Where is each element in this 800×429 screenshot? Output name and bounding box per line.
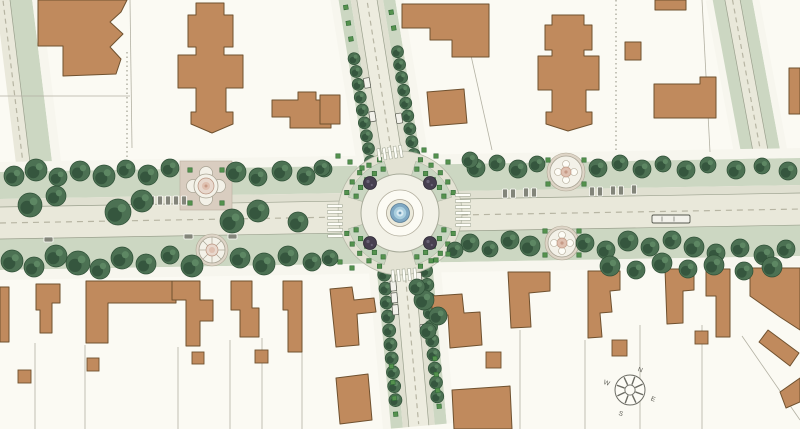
plaza-planter bbox=[563, 177, 570, 184]
tree-highlight bbox=[34, 261, 40, 267]
crosswalk-bar bbox=[328, 234, 343, 237]
building-footprint bbox=[538, 15, 599, 131]
shrub bbox=[433, 356, 438, 361]
tree-highlight bbox=[650, 241, 656, 247]
shrub bbox=[346, 21, 351, 26]
street-tree bbox=[181, 255, 203, 277]
tree-highlight bbox=[258, 171, 264, 177]
shrub bbox=[367, 163, 371, 167]
specimen-tree-canopy bbox=[364, 177, 377, 190]
shrub bbox=[220, 168, 224, 172]
tree-highlight bbox=[606, 244, 612, 250]
shrub bbox=[357, 170, 361, 174]
plaza-basin-core bbox=[209, 247, 215, 253]
shrub bbox=[446, 160, 450, 164]
building-footprint bbox=[0, 287, 9, 342]
street-tree bbox=[612, 155, 628, 171]
tree-highlight bbox=[497, 158, 502, 163]
shrub bbox=[391, 26, 396, 31]
shrub bbox=[415, 167, 419, 171]
tree-highlight bbox=[772, 261, 778, 267]
street-tree bbox=[633, 160, 651, 178]
street-tree bbox=[618, 231, 638, 251]
bus-body bbox=[652, 215, 690, 223]
street-tree bbox=[253, 253, 275, 275]
tree-highlight bbox=[764, 249, 770, 255]
specimen-tree-canopy bbox=[424, 177, 437, 190]
tree-highlight bbox=[142, 194, 149, 201]
tree-highlight bbox=[716, 247, 722, 253]
shrub bbox=[543, 229, 547, 233]
street-tree bbox=[641, 238, 659, 256]
tree-highlight bbox=[80, 165, 86, 171]
compass-rose-graphic bbox=[615, 375, 645, 405]
tree-highlight bbox=[122, 251, 129, 258]
shrub bbox=[438, 170, 442, 174]
shrub bbox=[350, 266, 354, 270]
plaza-jet bbox=[560, 241, 563, 244]
tree-highlight bbox=[518, 163, 524, 169]
shrub bbox=[418, 264, 422, 268]
outbuilding-footprint bbox=[255, 350, 268, 363]
tree-highlight bbox=[786, 243, 792, 249]
tree-highlight bbox=[240, 252, 246, 258]
shrub bbox=[442, 194, 446, 198]
parked-car bbox=[632, 185, 637, 194]
street-tree bbox=[655, 156, 671, 172]
tree-highlight bbox=[258, 204, 265, 211]
shrub bbox=[437, 236, 441, 240]
street-tree bbox=[589, 159, 607, 177]
street-tree bbox=[529, 156, 545, 172]
street-tree bbox=[161, 246, 179, 264]
parked-car bbox=[590, 187, 595, 196]
specimen-tree-highlight bbox=[366, 240, 369, 243]
tree-highlight bbox=[662, 257, 668, 263]
street-tree bbox=[138, 165, 158, 185]
street-tree bbox=[754, 158, 770, 174]
crosswalk-bar bbox=[456, 211, 471, 214]
parked-car bbox=[611, 186, 616, 195]
street-tree bbox=[105, 199, 131, 225]
shrub bbox=[546, 158, 550, 162]
bus bbox=[652, 215, 690, 223]
tree-highlight bbox=[530, 240, 536, 246]
street-tree bbox=[704, 255, 724, 275]
plaza-planter bbox=[567, 240, 574, 247]
shrub bbox=[390, 380, 395, 385]
shrub bbox=[348, 160, 352, 164]
tree-highlight bbox=[330, 253, 335, 258]
crosswalk-bar bbox=[456, 217, 471, 220]
crosswalk-bar bbox=[327, 210, 342, 213]
parked-car bbox=[532, 188, 537, 197]
shrub bbox=[354, 228, 358, 232]
tree-highlight bbox=[58, 171, 64, 177]
tree-highlight bbox=[510, 234, 516, 240]
street-tree bbox=[314, 160, 330, 176]
shrub bbox=[438, 251, 442, 255]
parked-car bbox=[392, 305, 399, 315]
building-footprint bbox=[320, 95, 340, 124]
parked-car bbox=[369, 111, 377, 122]
parked-car bbox=[619, 186, 624, 195]
specimen-tree bbox=[424, 177, 437, 190]
street-tree bbox=[220, 209, 244, 233]
outbuilding-footprint bbox=[695, 331, 708, 344]
tree-highlight bbox=[694, 241, 700, 247]
shrub bbox=[393, 412, 398, 417]
tree-highlight bbox=[470, 155, 475, 160]
street-tree bbox=[735, 262, 753, 280]
shrub bbox=[437, 185, 441, 189]
tree-highlight bbox=[312, 256, 318, 262]
street-tree bbox=[731, 239, 749, 257]
tree-highlight bbox=[688, 263, 694, 269]
crosswalk-bar bbox=[455, 193, 470, 196]
plaza-planter bbox=[555, 169, 562, 176]
shrub bbox=[451, 231, 455, 235]
shrub bbox=[377, 264, 381, 268]
street-tree bbox=[520, 236, 540, 256]
tree-highlight bbox=[78, 256, 86, 264]
shrub bbox=[389, 10, 394, 15]
street-tree bbox=[576, 234, 594, 252]
tree-highlight bbox=[672, 234, 678, 240]
outbuilding-footprint bbox=[486, 352, 501, 368]
specimen-tree-highlight bbox=[426, 180, 429, 183]
street-tree bbox=[663, 231, 681, 249]
outbuilding-footprint bbox=[87, 358, 99, 371]
shrub bbox=[434, 258, 438, 262]
street-tree bbox=[501, 231, 519, 249]
roundabout bbox=[338, 151, 462, 275]
street-tree bbox=[111, 247, 133, 269]
shrub bbox=[345, 231, 349, 235]
street-tree bbox=[226, 162, 246, 182]
shrub bbox=[338, 260, 342, 264]
shrub bbox=[360, 166, 364, 170]
shrub bbox=[188, 201, 192, 205]
compass-hub bbox=[625, 385, 635, 395]
street-tree bbox=[249, 168, 267, 186]
shrub bbox=[434, 154, 438, 158]
street-tree bbox=[4, 166, 24, 186]
plaza-planter bbox=[571, 169, 578, 176]
shrub bbox=[423, 171, 427, 175]
shrub bbox=[220, 201, 224, 205]
tree-highlight bbox=[170, 249, 176, 255]
shrub bbox=[345, 190, 349, 194]
plaza-planter bbox=[559, 248, 566, 255]
tree-highlight bbox=[170, 162, 176, 168]
tree-highlight bbox=[620, 158, 625, 163]
tree-highlight bbox=[14, 170, 20, 176]
street-tree bbox=[679, 260, 697, 278]
tree-highlight bbox=[455, 245, 460, 250]
tree-highlight bbox=[714, 259, 720, 265]
crosswalk-bar bbox=[327, 216, 342, 219]
specimen-tree-canopy bbox=[424, 237, 437, 250]
street-tree bbox=[700, 157, 716, 173]
site-plan-page: N E S W bbox=[0, 0, 800, 429]
street-tree bbox=[230, 248, 250, 268]
street-tree bbox=[278, 246, 298, 266]
street-tree bbox=[45, 245, 67, 267]
specimen-tree-highlight bbox=[371, 244, 373, 246]
street-tree bbox=[303, 253, 321, 271]
shrub bbox=[422, 148, 426, 152]
parked-car bbox=[44, 237, 53, 242]
street-tree bbox=[46, 186, 66, 206]
specimen-tree bbox=[364, 237, 377, 250]
tree-highlight bbox=[192, 259, 199, 266]
shrub bbox=[546, 182, 550, 186]
street-tree bbox=[462, 152, 478, 168]
parked-car bbox=[174, 196, 179, 205]
crosswalk-bar bbox=[455, 199, 470, 202]
tree-highlight bbox=[30, 198, 38, 206]
building-footprint bbox=[336, 374, 372, 424]
shrub bbox=[582, 182, 586, 186]
street-tree bbox=[420, 323, 436, 339]
street-tree bbox=[762, 257, 782, 277]
street-tree bbox=[66, 251, 90, 275]
tree-highlight bbox=[236, 166, 242, 172]
shrub bbox=[582, 158, 586, 162]
shrub bbox=[389, 364, 394, 369]
shrub bbox=[367, 259, 371, 263]
crosswalk-bar bbox=[456, 223, 471, 226]
tree-highlight bbox=[288, 250, 294, 256]
street-tree bbox=[136, 254, 156, 274]
tree-highlight bbox=[585, 237, 591, 243]
tree-highlight bbox=[628, 235, 634, 241]
shrub bbox=[188, 168, 192, 172]
street-tree bbox=[161, 159, 179, 177]
tree-highlight bbox=[12, 254, 19, 261]
specimen-tree-canopy bbox=[364, 237, 377, 250]
plaza-planter bbox=[551, 240, 558, 247]
parked-car bbox=[228, 234, 237, 239]
outbuilding-footprint bbox=[18, 370, 31, 383]
plaza-jet bbox=[564, 170, 567, 173]
parked-car bbox=[182, 196, 187, 205]
street-tree bbox=[779, 162, 797, 180]
outbuilding-footprint bbox=[612, 340, 627, 356]
street-tree bbox=[677, 161, 695, 179]
tree-highlight bbox=[740, 242, 746, 248]
specimen-tree-highlight bbox=[431, 244, 433, 246]
street-tree bbox=[461, 234, 479, 252]
shrub bbox=[451, 190, 455, 194]
shrub bbox=[577, 253, 581, 257]
street-tree bbox=[429, 307, 447, 325]
street-tree bbox=[272, 161, 292, 181]
shrub bbox=[429, 163, 433, 167]
parked-car bbox=[166, 196, 171, 205]
tree-highlight bbox=[56, 190, 62, 196]
street-tree bbox=[777, 240, 795, 258]
shrub bbox=[343, 5, 348, 10]
tree-highlight bbox=[322, 163, 327, 168]
shrub bbox=[357, 251, 361, 255]
tree-highlight bbox=[417, 282, 422, 287]
shrub bbox=[418, 158, 422, 162]
specimen-tree-highlight bbox=[426, 240, 429, 243]
specimen-tree-highlight bbox=[366, 180, 369, 183]
shrub bbox=[350, 180, 354, 184]
shrub bbox=[577, 229, 581, 233]
tree-highlight bbox=[264, 257, 271, 264]
shrub bbox=[392, 396, 397, 401]
parked-car bbox=[395, 113, 403, 124]
parked-car bbox=[184, 234, 193, 239]
street-tree bbox=[322, 250, 338, 266]
street-tree bbox=[600, 256, 620, 276]
tree-highlight bbox=[736, 164, 742, 170]
shrub bbox=[350, 242, 354, 246]
specimen-tree-highlight bbox=[371, 184, 373, 186]
parked-car bbox=[503, 189, 508, 198]
tree-highlight bbox=[610, 260, 616, 266]
tree-highlight bbox=[788, 165, 794, 171]
shrub bbox=[446, 180, 450, 184]
plaza-jet bbox=[205, 185, 208, 188]
shrub bbox=[543, 253, 547, 257]
tree-highlight bbox=[708, 160, 713, 165]
tree-highlight bbox=[232, 214, 240, 222]
tree-highlight bbox=[146, 258, 152, 264]
crosswalk-bar bbox=[327, 204, 342, 207]
tree-highlight bbox=[104, 169, 111, 176]
street-tree bbox=[24, 257, 44, 277]
street-tree bbox=[93, 165, 115, 187]
building-footprint bbox=[452, 386, 512, 429]
shrub bbox=[434, 372, 439, 377]
shrub bbox=[354, 194, 358, 198]
tree-highlight bbox=[56, 249, 63, 256]
tree-highlight bbox=[126, 163, 132, 169]
street-tree bbox=[49, 168, 67, 186]
shrub bbox=[336, 154, 340, 158]
street-tree bbox=[727, 161, 745, 179]
parked-car bbox=[391, 293, 398, 303]
street-tree bbox=[509, 160, 527, 178]
shrub bbox=[437, 404, 442, 409]
crosswalk-bar bbox=[328, 228, 343, 231]
street-tree bbox=[131, 190, 153, 212]
building-footprint bbox=[789, 68, 800, 114]
tree-highlight bbox=[306, 170, 312, 176]
tree-highlight bbox=[282, 165, 288, 171]
street-tree bbox=[18, 193, 42, 217]
tree-highlight bbox=[744, 265, 750, 271]
specimen-tree-highlight bbox=[431, 184, 433, 186]
plaza-planter bbox=[559, 232, 566, 239]
street-tree bbox=[489, 155, 505, 171]
plaza-planter bbox=[563, 161, 570, 168]
shrub bbox=[446, 252, 450, 256]
parked-car bbox=[511, 189, 516, 198]
tree-highlight bbox=[100, 263, 106, 269]
tree-highlight bbox=[642, 163, 648, 169]
crosswalk-bar bbox=[455, 205, 470, 208]
street-tree bbox=[247, 200, 269, 222]
parked-car bbox=[598, 187, 603, 196]
tree-highlight bbox=[298, 216, 304, 222]
street-tree bbox=[652, 253, 672, 273]
street-tree bbox=[25, 159, 47, 181]
street-tree bbox=[684, 237, 704, 257]
shrub bbox=[372, 171, 376, 175]
parked-car bbox=[363, 78, 371, 89]
shrub bbox=[372, 250, 376, 254]
street-tree bbox=[90, 259, 110, 279]
street-tree bbox=[288, 212, 308, 232]
shrub bbox=[429, 259, 433, 263]
street-tree bbox=[70, 161, 90, 181]
outbuilding-footprint bbox=[192, 352, 204, 364]
fountain-jet bbox=[399, 212, 402, 215]
site-plan-canvas: N E S W bbox=[0, 0, 800, 429]
specimen-tree bbox=[424, 237, 437, 250]
tree-highlight bbox=[598, 162, 604, 168]
tree-highlight bbox=[537, 159, 542, 164]
shrub bbox=[442, 228, 446, 232]
tree-highlight bbox=[490, 244, 495, 249]
shrub bbox=[435, 388, 440, 393]
tree-highlight bbox=[36, 163, 43, 170]
tree-highlight bbox=[470, 237, 476, 243]
building-footprint bbox=[427, 89, 467, 126]
tree-highlight bbox=[428, 326, 433, 331]
shrub bbox=[381, 167, 385, 171]
building-footprint bbox=[625, 42, 641, 60]
tree-highlight bbox=[636, 264, 642, 270]
street-tree bbox=[482, 241, 498, 257]
parked-car bbox=[158, 196, 163, 205]
tree-highlight bbox=[686, 164, 692, 170]
tree-highlight bbox=[424, 294, 430, 300]
shrub bbox=[381, 255, 385, 259]
shrub bbox=[358, 185, 362, 189]
tree-highlight bbox=[663, 159, 668, 164]
crosswalk-bar bbox=[328, 222, 343, 225]
tree-highlight bbox=[438, 310, 444, 316]
shrub bbox=[423, 250, 427, 254]
building-footprint bbox=[655, 0, 686, 10]
street-tree bbox=[627, 261, 645, 279]
shrub bbox=[348, 36, 353, 41]
tree-highlight bbox=[148, 169, 154, 175]
street-tree bbox=[1, 250, 23, 272]
shrub bbox=[415, 255, 419, 259]
tree-highlight bbox=[762, 161, 767, 166]
street-tree bbox=[297, 167, 315, 185]
street-tree bbox=[409, 279, 425, 295]
shrub bbox=[358, 236, 362, 240]
street-tree bbox=[117, 160, 135, 178]
tree-highlight bbox=[118, 204, 126, 212]
specimen-tree bbox=[364, 177, 377, 190]
parked-car bbox=[524, 188, 529, 197]
